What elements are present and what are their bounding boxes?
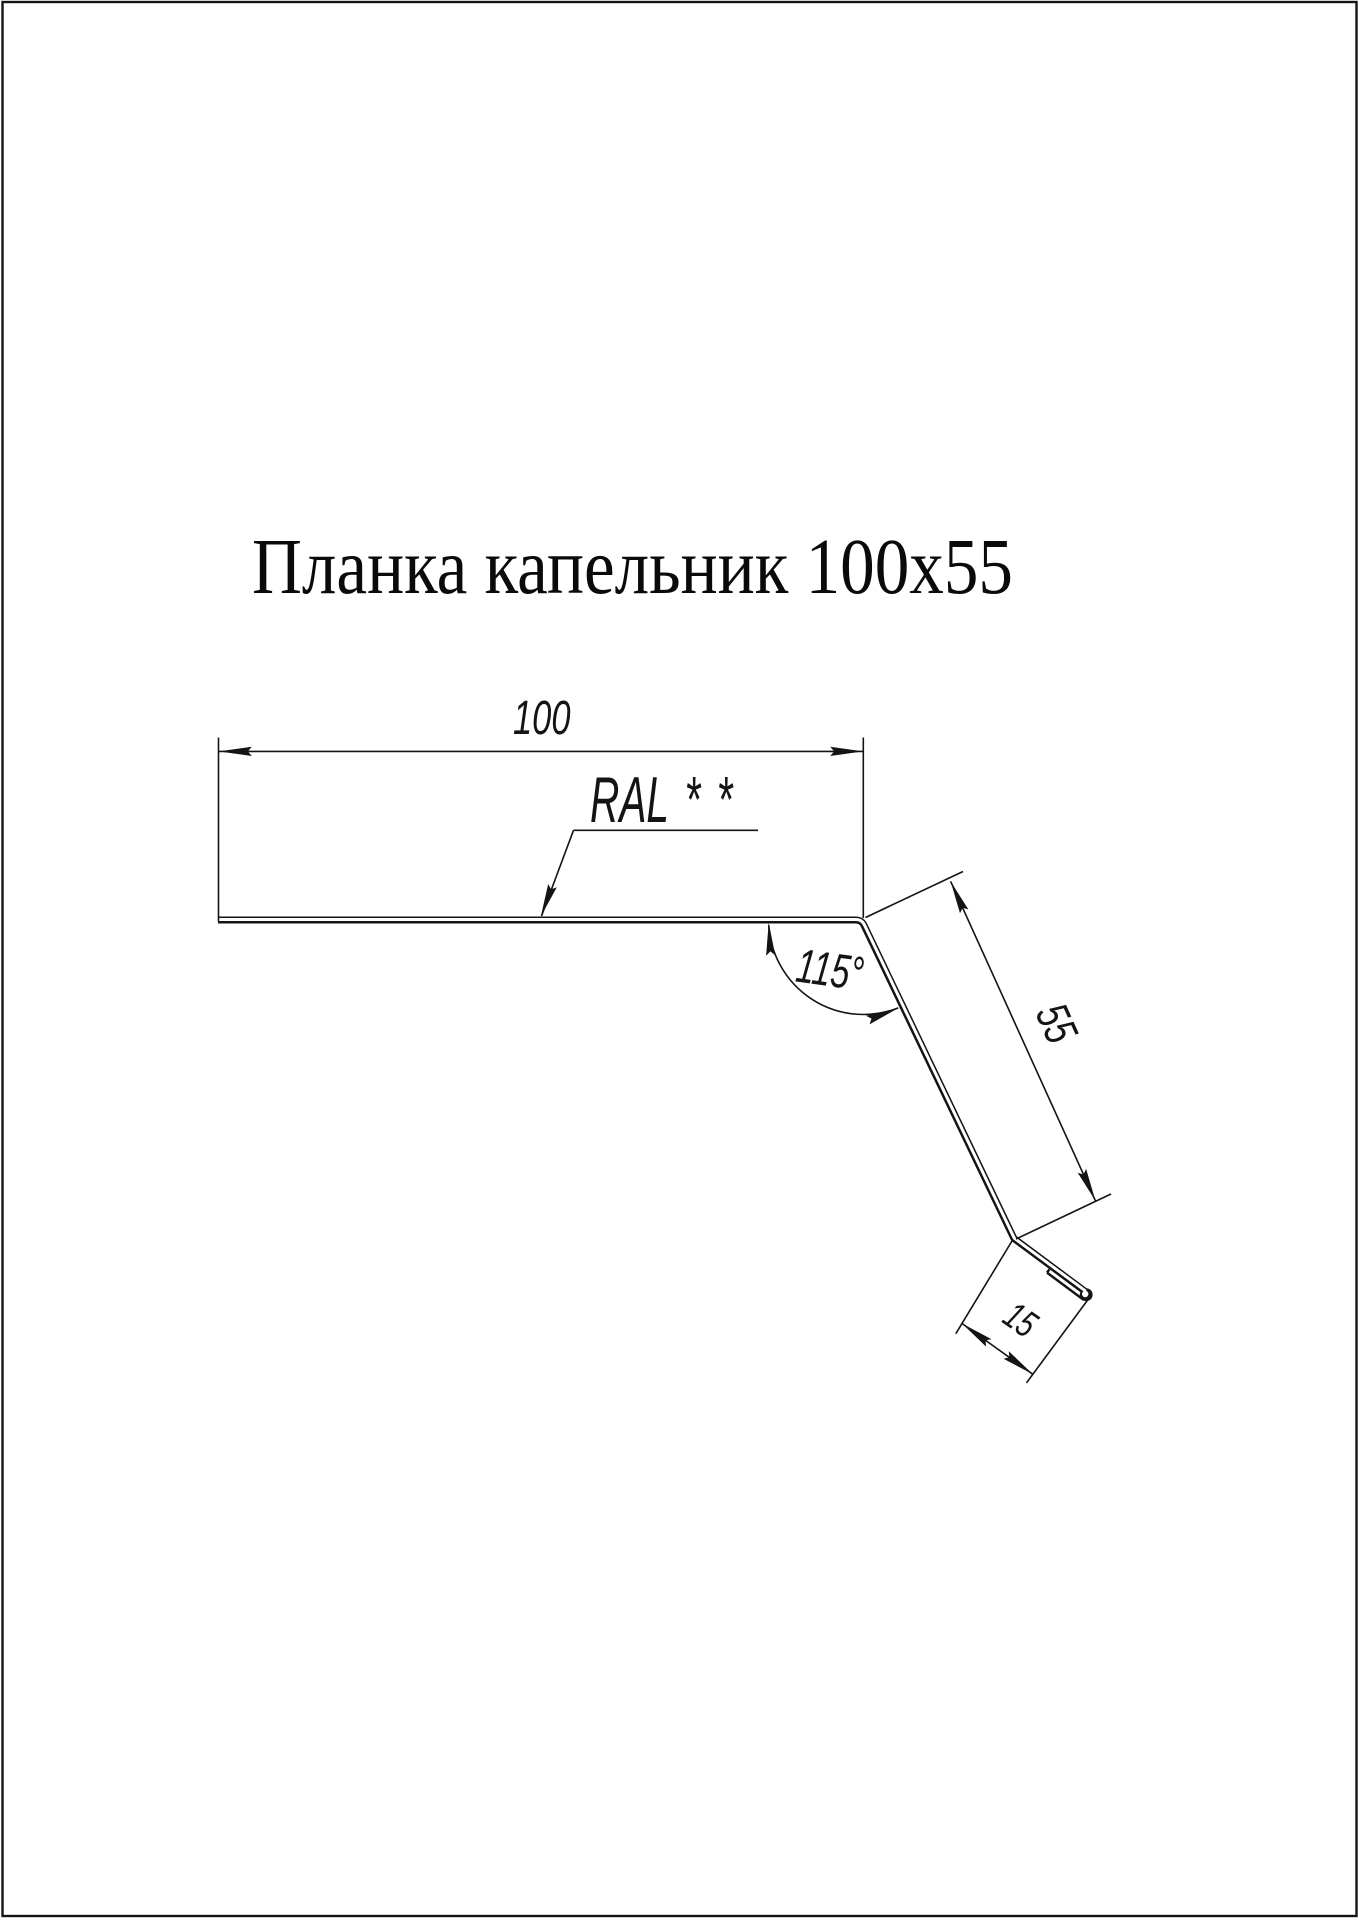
svg-text:100: 100 [513, 690, 570, 744]
svg-text:Планка капельник 100х55: Планка капельник 100х55 [252, 524, 1013, 611]
svg-text:RAL: RAL [590, 765, 669, 837]
svg-text:*: * [717, 765, 734, 837]
svg-text:115°: 115° [793, 938, 867, 1001]
svg-text:*: * [685, 765, 702, 837]
